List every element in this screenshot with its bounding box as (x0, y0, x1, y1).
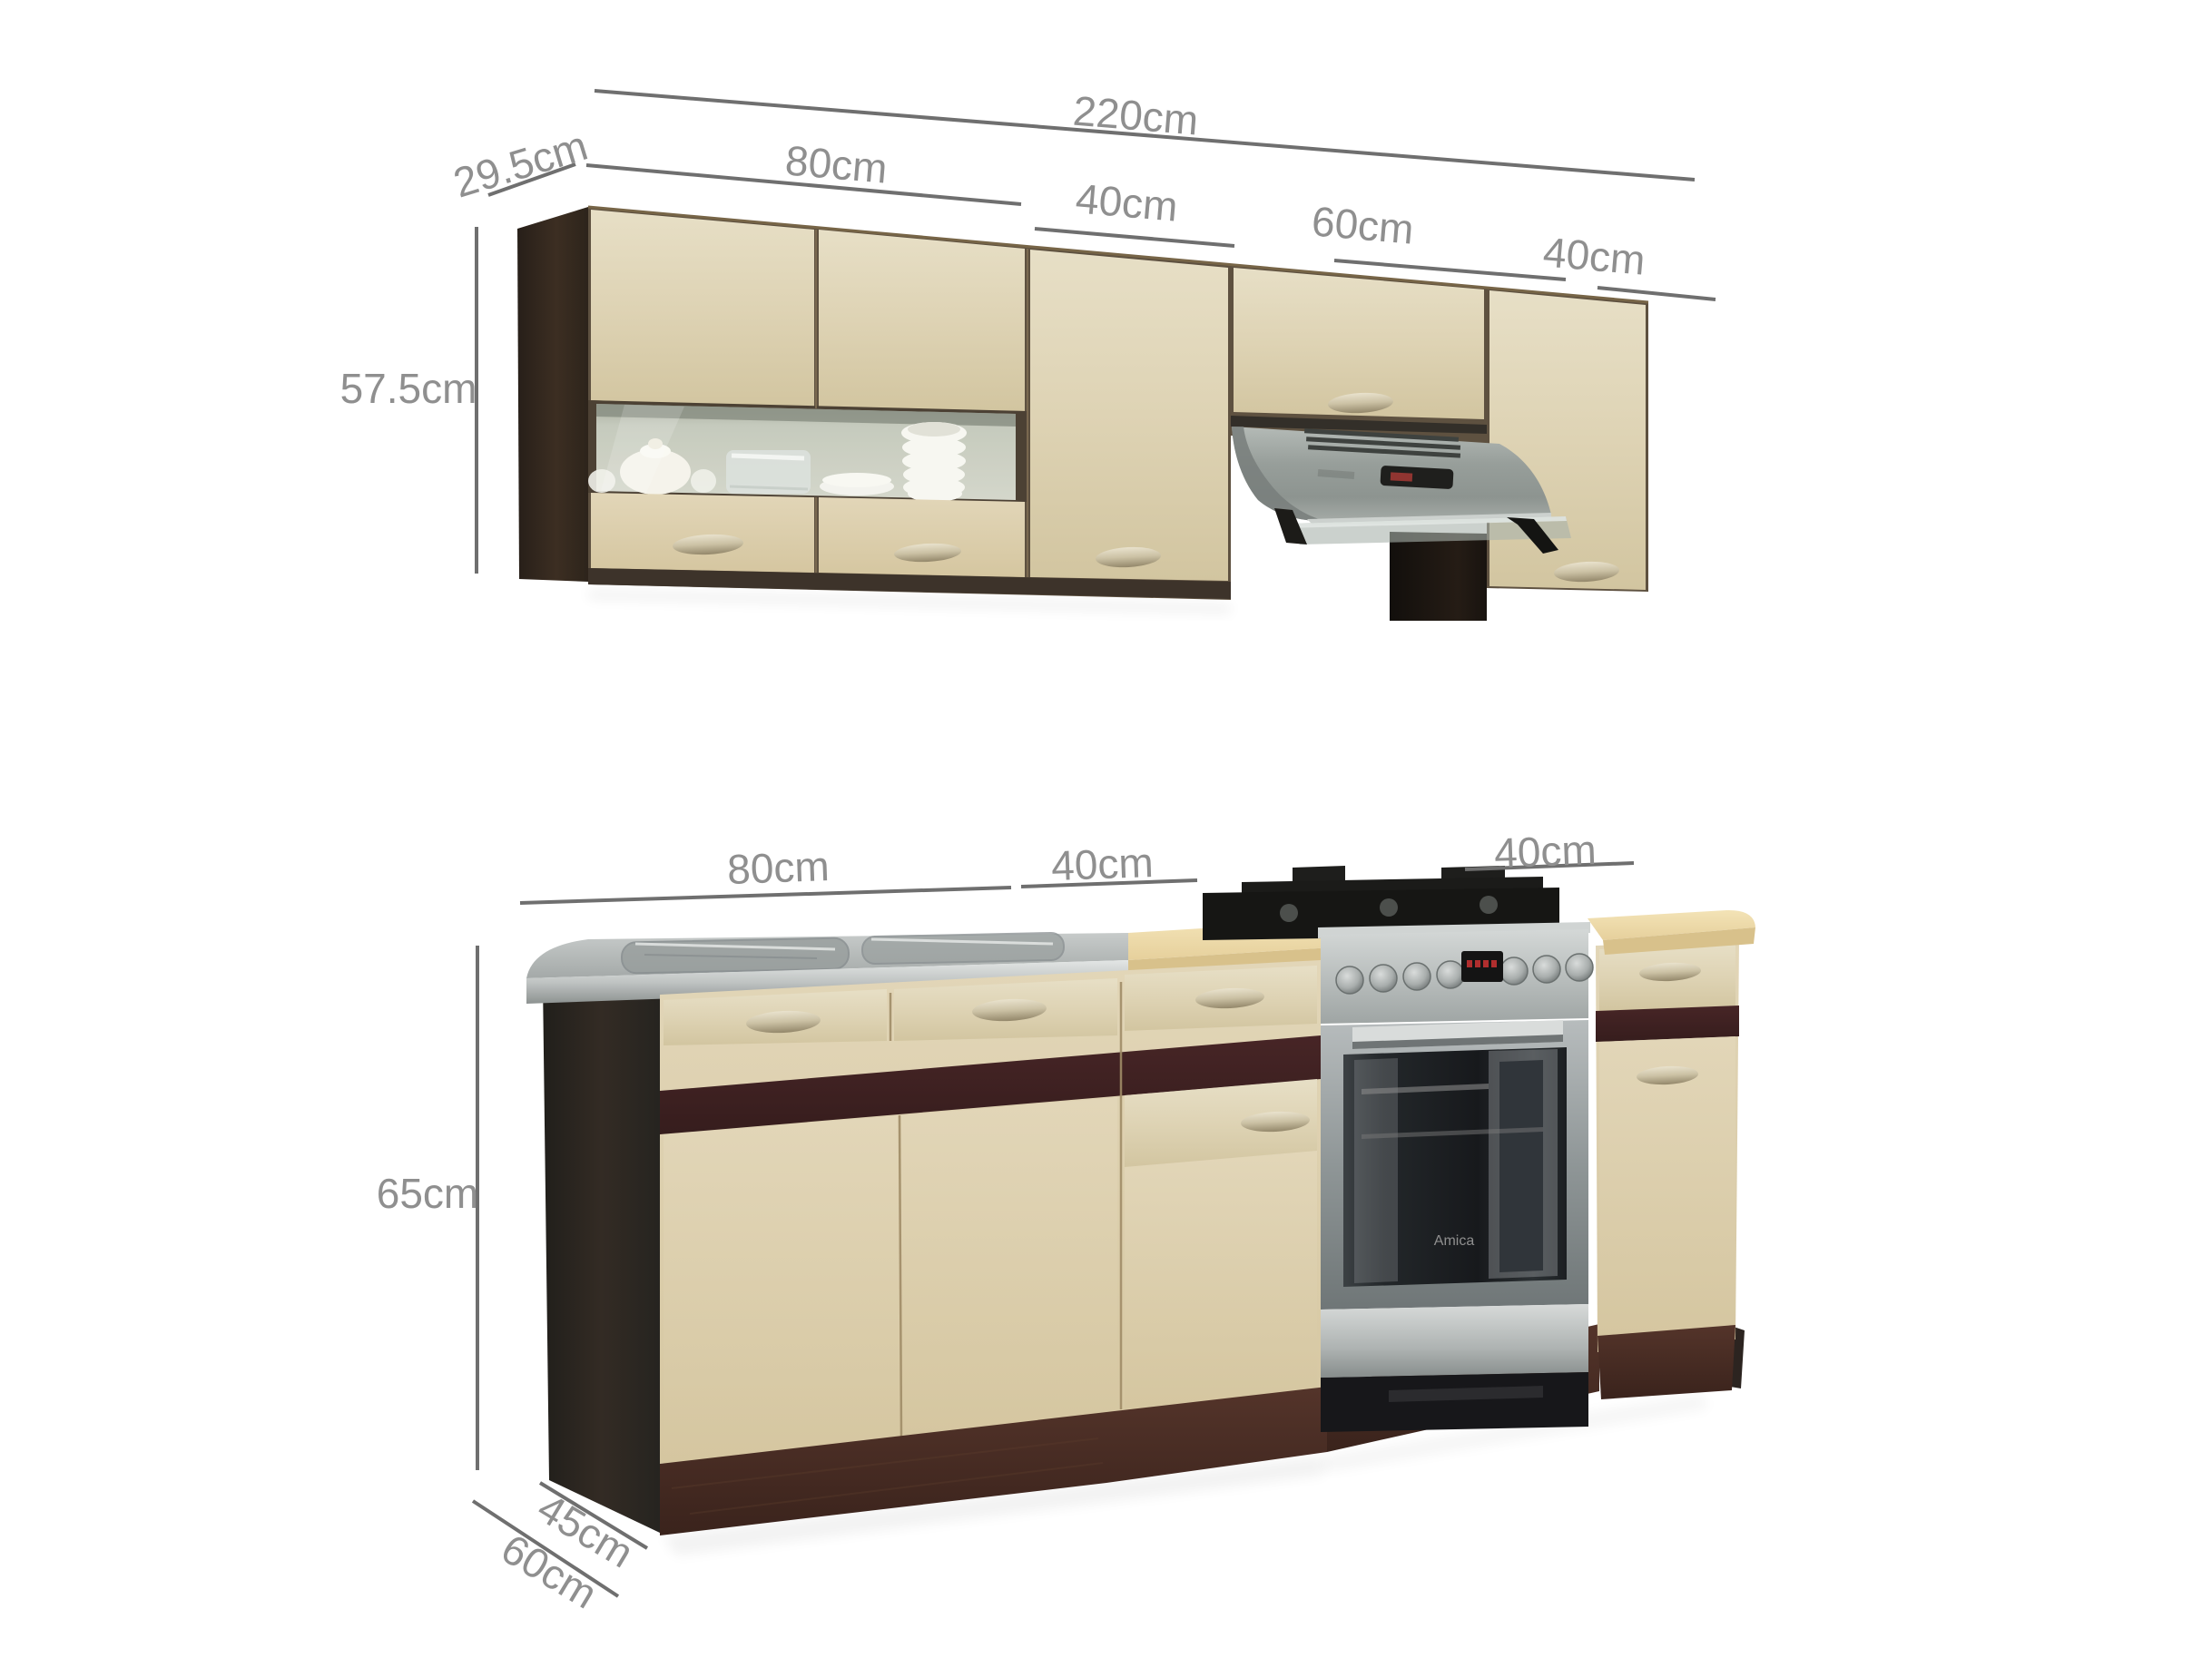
svg-text:40cm: 40cm (1074, 174, 1179, 230)
svg-text:40cm: 40cm (1493, 826, 1597, 877)
svg-text:65cm: 65cm (377, 1170, 478, 1217)
svg-text:40cm: 40cm (1050, 839, 1154, 889)
svg-text:80cm: 80cm (726, 842, 830, 893)
svg-text:80cm: 80cm (783, 136, 889, 191)
svg-text:40cm: 40cm (1541, 228, 1647, 283)
svg-text:220cm: 220cm (1071, 87, 1200, 144)
svg-text:60cm: 60cm (1310, 197, 1415, 252)
svg-text:Amica: Amica (1434, 1233, 1475, 1249)
svg-text:57.5cm: 57.5cm (340, 365, 477, 412)
